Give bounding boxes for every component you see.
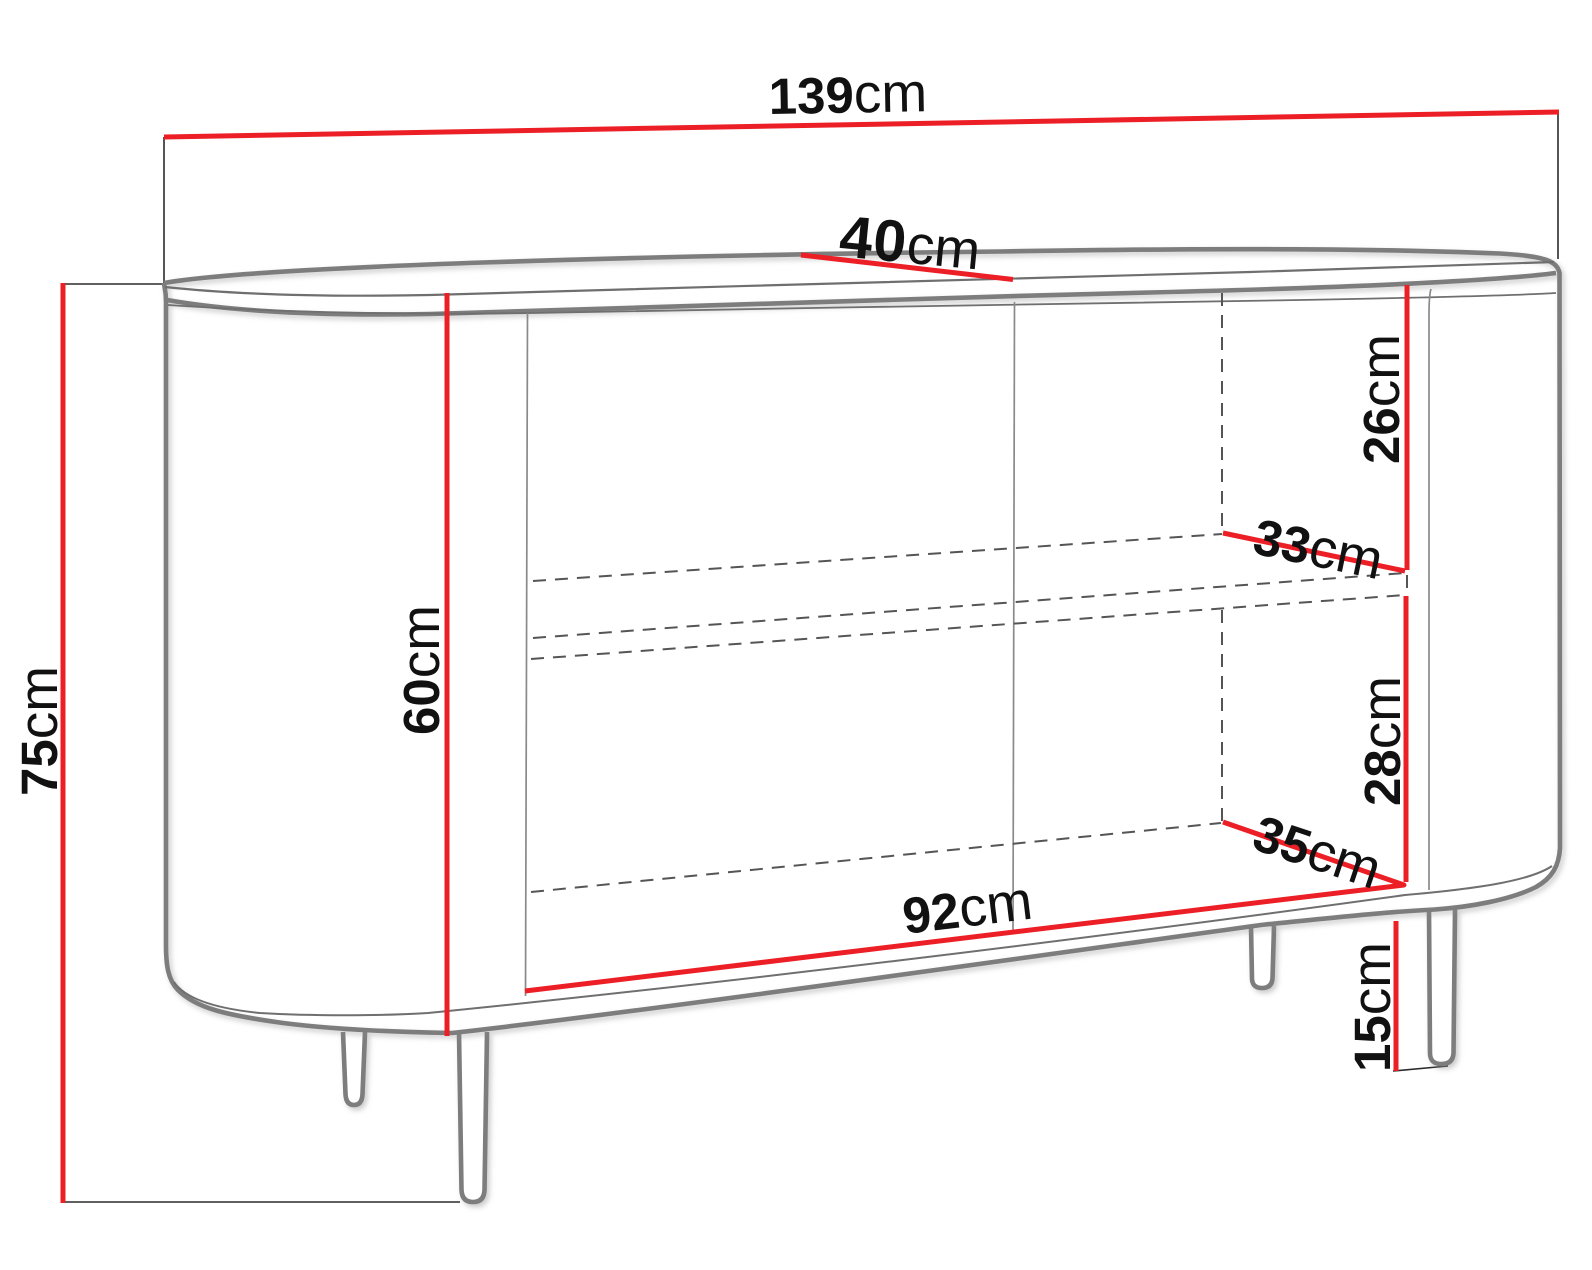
- svg-text:35cm: 35cm: [1246, 801, 1389, 901]
- svg-text:15cm: 15cm: [1340, 942, 1402, 1072]
- svg-text:40cm: 40cm: [837, 203, 984, 282]
- svg-text:33cm: 33cm: [1249, 504, 1389, 591]
- svg-text:139cm: 139cm: [768, 61, 927, 126]
- svg-text:26cm: 26cm: [1349, 334, 1411, 464]
- svg-text:28cm: 28cm: [1350, 676, 1412, 806]
- svg-text:60cm: 60cm: [389, 605, 451, 735]
- svg-text:75cm: 75cm: [7, 666, 69, 796]
